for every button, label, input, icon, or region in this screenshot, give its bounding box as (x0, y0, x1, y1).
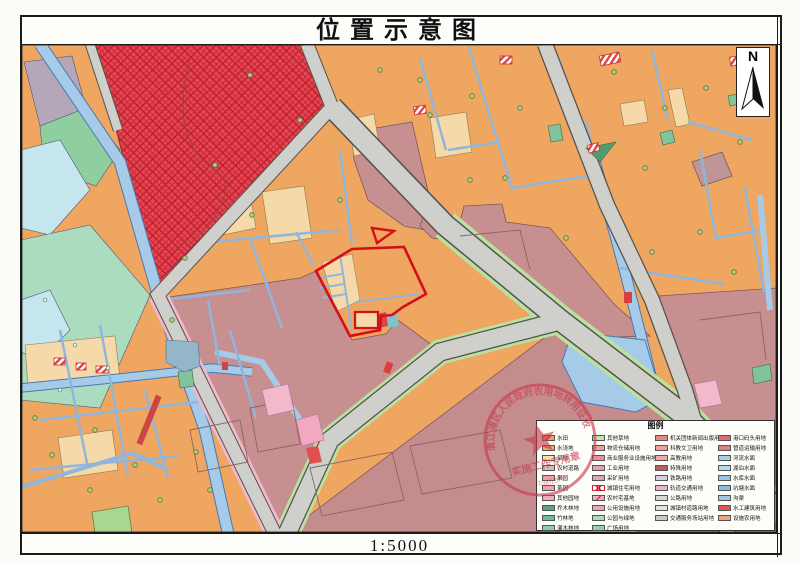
legend-label: 机关团体新闻出版用地 (670, 434, 725, 442)
legend-item: 水浇地 (542, 443, 592, 453)
legend-item: 农村道路 (542, 463, 592, 473)
legend-item: 城镇村道路用地 (655, 503, 717, 513)
legend-label: 果园 (557, 474, 568, 482)
scale-band: 1:5000 (22, 533, 777, 557)
legend-swatch (542, 475, 555, 481)
legend-swatch (592, 475, 605, 481)
legend-label: 港口码头用地 (733, 434, 766, 442)
legend-label: 轨道交通用地 (670, 484, 703, 492)
legend-swatch (655, 465, 668, 471)
legend-item: 工业用地 (592, 463, 654, 473)
legend-swatch (592, 525, 605, 531)
legend-swatch (718, 505, 731, 511)
legend-label: 灌木林地 (557, 524, 579, 532)
legend-column-2: 其他草地物流仓储用地商业服务业设施用地工业用地采矿用地城镇住宅用地农村宅基地公用… (592, 433, 654, 533)
north-label: N (737, 48, 769, 64)
legend-swatch (655, 475, 668, 481)
legend-item: 商业服务业设施用地 (592, 453, 654, 463)
legend-label: 水库水面 (733, 474, 755, 482)
legend-swatch (655, 515, 668, 521)
legend-label: 特殊用地 (670, 464, 692, 472)
legend-label: 竹林地 (557, 514, 574, 522)
legend-swatch (542, 505, 555, 511)
legend-item: 灌木林地 (542, 523, 592, 533)
legend-label: 其他园地 (557, 494, 579, 502)
legend-label: 城镇村道路用地 (670, 504, 709, 512)
legend-item: 果园 (542, 473, 592, 483)
legend-swatch (592, 455, 605, 461)
title-band: 位置示意图 (22, 18, 780, 44)
legend-swatch (718, 435, 731, 441)
legend-item: 交通服务场站用地 (655, 513, 717, 523)
legend-swatch (542, 525, 555, 531)
legend-column-3: 机关团体新闻出版用地科教文卫用地高教用地特殊用地铁路用地轨道交通用地公路用地城镇… (655, 433, 717, 523)
legend-item: 公路用地 (655, 493, 717, 503)
right-margin-line (777, 17, 778, 557)
legend-item: 水工建筑用地 (718, 503, 774, 513)
legend-label: 公园与绿地 (607, 514, 635, 522)
legend-item: 机关团体新闻出版用地 (655, 433, 717, 443)
legend-swatch (542, 465, 555, 471)
north-arrow: N (736, 47, 770, 117)
page-title: 位置示意图 (22, 18, 780, 44)
legend-swatch (542, 485, 555, 491)
legend-label: 水田 (557, 434, 568, 442)
legend-label: 广场用地 (607, 524, 629, 532)
legend-item: 特殊用地 (655, 463, 717, 473)
legend-swatch (542, 495, 555, 501)
legend-swatch (718, 455, 731, 461)
legend-column-1: 水田水浇地旱地农村道路果园茶园其他园地乔木林地竹林地灌木林地 (542, 433, 592, 533)
legend-item: 湖泊水面 (718, 463, 774, 473)
legend-swatch (718, 485, 731, 491)
legend-label: 其他草地 (607, 434, 629, 442)
legend-swatch (592, 435, 605, 441)
legend-item: 轨道交通用地 (655, 483, 717, 493)
legend-item: 河流水面 (718, 453, 774, 463)
legend-swatch (718, 475, 731, 481)
legend-swatch (655, 505, 668, 511)
legend-item: 水库水面 (718, 473, 774, 483)
legend-item: 乔木林地 (542, 503, 592, 513)
legend-label: 水工建筑用地 (733, 504, 766, 512)
legend-swatch (718, 445, 731, 451)
legend-item: 采矿用地 (592, 473, 654, 483)
legend-swatch (655, 485, 668, 491)
legend-label: 农村宅基地 (607, 494, 635, 502)
legend-swatch (542, 455, 555, 461)
legend-title: 图例 (537, 421, 774, 431)
legend-label: 农村道路 (557, 464, 579, 472)
legend-label: 河流水面 (733, 454, 755, 462)
legend-label: 湖泊水面 (733, 464, 755, 472)
legend-swatch (655, 495, 668, 501)
legend-label: 高教用地 (670, 454, 692, 462)
legend-item: 公园与绿地 (592, 513, 654, 523)
legend-item: 物流仓储用地 (592, 443, 654, 453)
legend-label: 商业服务业设施用地 (607, 454, 657, 462)
legend-item: 沟渠 (718, 493, 774, 503)
legend-swatch (718, 515, 731, 521)
legend-label: 城镇住宅用地 (607, 484, 640, 492)
legend-label: 水浇地 (557, 444, 574, 452)
legend-label: 沟渠 (733, 494, 744, 502)
legend-swatch (718, 495, 731, 501)
legend-item: 旱地 (542, 453, 592, 463)
legend-item: 铁路用地 (655, 473, 717, 483)
legend-label: 交通服务场站用地 (670, 514, 714, 522)
legend-item: 茶园 (542, 483, 592, 493)
legend-label: 管道运输用地 (733, 444, 766, 452)
legend-label: 科教文卫用地 (670, 444, 703, 452)
legend-swatch (592, 515, 605, 521)
legend-column-4: 港口码头用地管道运输用地河流水面湖泊水面水库水面坑塘水面沟渠水工建筑用地设施农用… (718, 433, 774, 523)
legend-swatch (592, 465, 605, 471)
legend-swatch (542, 515, 555, 521)
scale-label: 1:5000 (22, 533, 777, 559)
legend-item: 高教用地 (655, 453, 717, 463)
legend-swatch (655, 445, 668, 451)
legend-label: 公路用地 (670, 494, 692, 502)
legend-swatch (542, 435, 555, 441)
legend-item: 竹林地 (542, 513, 592, 523)
legend-label: 采矿用地 (607, 474, 629, 482)
legend-label: 旱地 (557, 454, 568, 462)
legend-item: 管道运输用地 (718, 443, 774, 453)
legend-box: 图例 水田水浇地旱地农村道路果园茶园其他园地乔木林地竹林地灌木林地 其他草地物流… (536, 420, 775, 531)
legend-label: 公用设施用地 (607, 504, 640, 512)
north-arrow-icon (738, 64, 768, 112)
legend-item: 港口码头用地 (718, 433, 774, 443)
legend-item: 城镇住宅用地 (592, 483, 654, 493)
legend-swatch (542, 445, 555, 451)
map-sheet: 位置示意图 (0, 0, 800, 565)
legend-item: 广场用地 (592, 523, 654, 533)
legend-label: 设施农用地 (733, 514, 761, 522)
legend-swatch (592, 505, 605, 511)
legend-swatch (655, 435, 668, 441)
legend-item: 农村宅基地 (592, 493, 654, 503)
legend-swatch (592, 495, 605, 501)
legend-label: 物流仓储用地 (607, 444, 640, 452)
legend-label: 坑塘水面 (733, 484, 755, 492)
legend-swatch (592, 485, 605, 491)
legend-swatch (655, 455, 668, 461)
legend-item: 公用设施用地 (592, 503, 654, 513)
legend-item: 水田 (542, 433, 592, 443)
legend-item: 科教文卫用地 (655, 443, 717, 453)
legend-item: 其他园地 (542, 493, 592, 503)
legend-label: 乔木林地 (557, 504, 579, 512)
legend-label: 工业用地 (607, 464, 629, 472)
legend-item: 其他草地 (592, 433, 654, 443)
legend-swatch (592, 445, 605, 451)
legend-label: 铁路用地 (670, 474, 692, 482)
legend-item: 坑塘水面 (718, 483, 774, 493)
legend-label: 茶园 (557, 484, 568, 492)
legend-item: 设施农用地 (718, 513, 774, 523)
legend-swatch (718, 465, 731, 471)
